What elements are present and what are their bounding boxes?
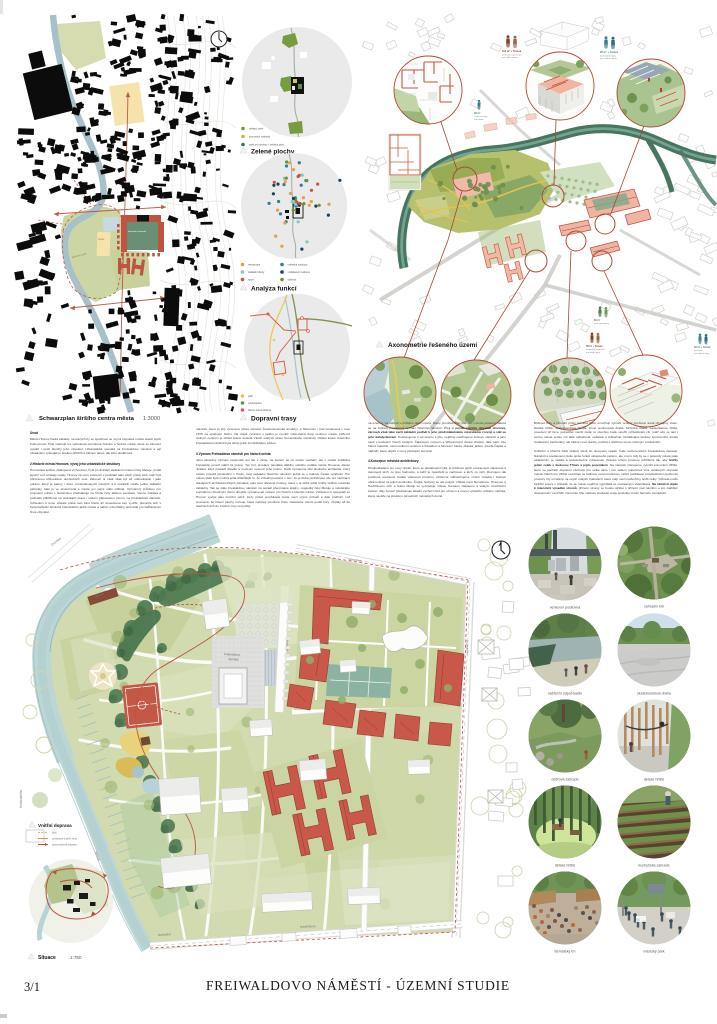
svg-text:1:750: 1:750 (70, 955, 82, 960)
svg-text:veřejný park: veřejný park (249, 127, 264, 131)
svg-text:3/1: 3/1 (24, 980, 40, 994)
svg-text:cyklistická a pěší zóna: cyklistická a pěší zóna (52, 838, 77, 841)
svg-text:restaurace: restaurace (248, 263, 261, 267)
svg-text:1:3000: 1:3000 (143, 416, 160, 422)
svg-text:malé apartmány: malé apartmány (594, 322, 610, 325)
svg-text:Havlíčkova: Havlíčkova (300, 924, 316, 929)
svg-text:pěší: pěší (248, 394, 253, 398)
svg-text:110 m² + Terasa: 110 m² + Terasa (502, 49, 522, 53)
svg-text:obchod: obchod (288, 278, 297, 282)
svg-text:komunitélní byty: komunitélní byty (600, 54, 617, 57)
svg-text:Hostovského: Hostovského (19, 789, 23, 808)
svg-text:60 m²: 60 m² (594, 318, 600, 322)
svg-text:městský park: městský park (643, 950, 664, 954)
svg-text:Situace: Situace (38, 955, 56, 961)
svg-text:startovací byty: startovací byty (474, 115, 488, 118)
svg-text:hlavní automobilová: hlavní automobilová (248, 408, 272, 412)
svg-text:dětské hřiště: dětské hřiště (555, 864, 575, 868)
svg-text:pro mladé: pro mladé (474, 118, 484, 121)
svg-text:komunitní zahrada: komunitní zahrada (128, 230, 147, 233)
svg-text:vzdělávací instituce: vzdělávací instituce (288, 270, 311, 274)
svg-text:apartmán: apartmán (694, 349, 704, 352)
svg-text:pěší: pěší (52, 832, 57, 835)
svg-text:park: park (126, 260, 131, 263)
svg-text:venkovní posilovna: venkovní posilovna (550, 606, 581, 610)
svg-text:Vnitřní doprava: Vnitřní doprava (38, 823, 72, 828)
svg-text:park pro seniory / veřejný par: park pro seniory / veřejný park (249, 143, 285, 147)
svg-text:48 m² + Terasa: 48 m² + Terasa (694, 345, 711, 349)
svg-text:kuchyňská zahrada: kuchyňská zahrada (639, 864, 670, 868)
svg-text:komunitní zahrady: komunitní zahrady (249, 135, 271, 139)
svg-text:pro mladé páry: pro mladé páry (586, 351, 601, 354)
svg-text:Husova: Husova (285, 640, 290, 651)
svg-text:Nádražní: Nádražní (158, 932, 171, 937)
svg-text:Analýza funkcí: Analýza funkcí (251, 286, 297, 293)
svg-text:skateboardová dráha: skateboardová dráha (637, 692, 671, 696)
svg-text:zahradní krb: zahradní krb (644, 605, 664, 609)
svg-text:dešťová zahrada: dešťová zahrada (552, 778, 579, 782)
svg-text:pro rodinné páry: pro rodinné páry (694, 352, 710, 355)
svg-text:FREIWALDOVO NÁMĚSTÍ - ÚZEMNÍ S: FREIWALDOVO NÁMĚSTÍ - ÚZEMNÍ STUDIE (206, 978, 510, 993)
svg-text:pro velké rodiny: pro velké rodiny (502, 56, 518, 59)
svg-text:městská instituce: městská instituce (288, 263, 308, 267)
svg-text:kompaktní apartmán: kompaktní apartmán (586, 348, 606, 351)
svg-text:základní školy: základní školy (248, 270, 265, 274)
svg-text:náměstí: náměstí (228, 657, 239, 662)
svg-text:automobilová doprava: automobilová doprava (52, 844, 77, 847)
svg-text:Axonometrie řešeného území: Axonometrie řešeného území (388, 342, 477, 349)
svg-text:nábřežní odpočívadlo: nábřežní odpočívadlo (548, 692, 582, 696)
svg-text:Schwarzplan širšího centra měs: Schwarzplan širšího centra města (39, 416, 135, 422)
svg-text:dětské hřiště: dětské hřiště (644, 778, 664, 782)
svg-text:sport: sport (248, 278, 254, 282)
svg-text:58 m² + Terasa: 58 m² + Terasa (586, 344, 603, 348)
svg-text:28 m²: 28 m² (474, 111, 480, 115)
svg-text:95 m² + Terasa: 95 m² + Terasa (600, 50, 618, 54)
svg-text:cyklostezka: cyklostezka (248, 401, 262, 405)
svg-text:vřesle: vřesle (98, 238, 105, 241)
svg-text:pro vzniké rodiny: pro vzniké rodiny (600, 57, 617, 60)
svg-text:farmářský trh: farmářský trh (555, 950, 576, 954)
svg-text:komunitní apartmán: komunitní apartmán (502, 53, 522, 56)
svg-text:Dopravní trasy: Dopravní trasy (251, 416, 297, 423)
